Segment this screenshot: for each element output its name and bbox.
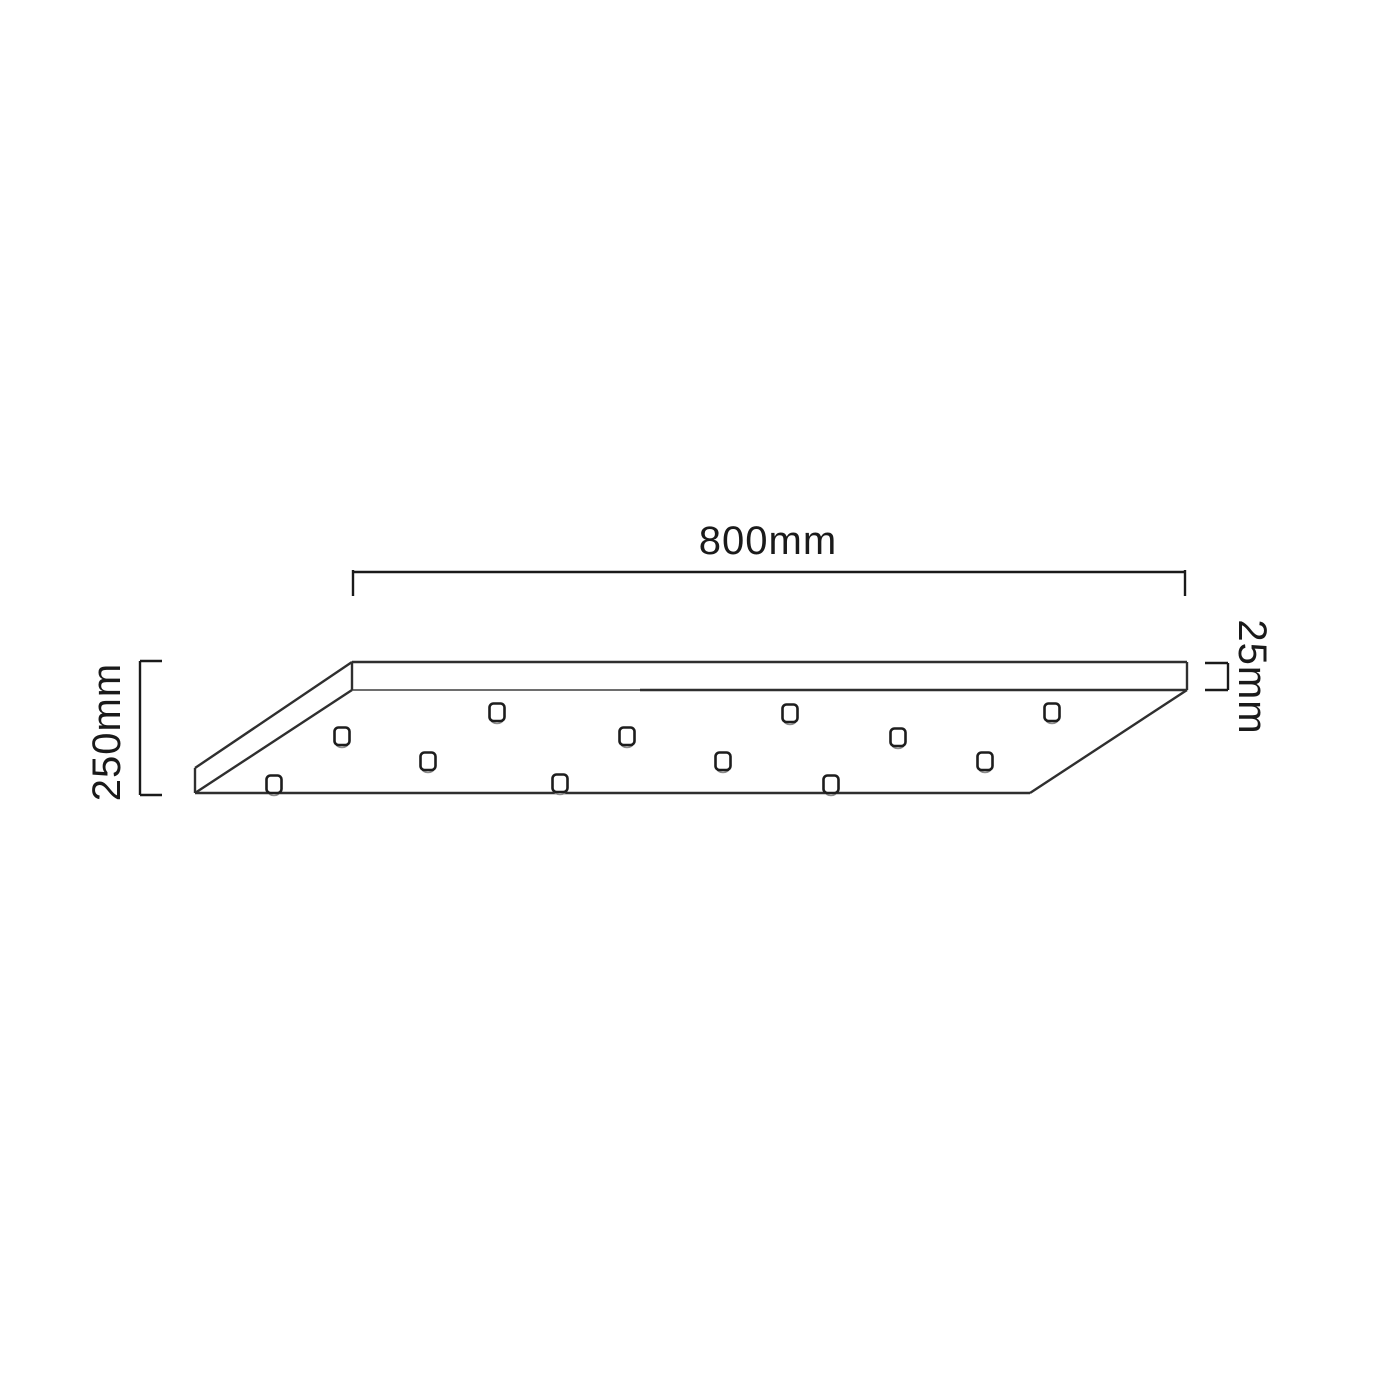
- cord-hole: [553, 775, 568, 795]
- cord-hole: [1045, 704, 1060, 724]
- cord-hole: [620, 728, 635, 748]
- cord-hole: [891, 729, 906, 749]
- cord-holes-group: [267, 704, 1060, 796]
- depth-dimension-label: 250mm: [85, 663, 129, 801]
- width-dimension-label: 800mm: [699, 519, 837, 563]
- cord-hole: [490, 704, 505, 724]
- cord-hole: [783, 705, 798, 725]
- cord-hole: [267, 776, 282, 796]
- plate-left-top-slant-edge: [195, 662, 352, 768]
- cord-hole: [824, 776, 839, 796]
- cord-hole: [335, 728, 350, 748]
- cord-hole: [978, 753, 993, 773]
- cord-hole: [716, 753, 731, 773]
- drawing-canvas: 800mm 250mm 25mm: [0, 0, 1400, 1400]
- thickness-dimension-label: 25mm: [1230, 619, 1274, 734]
- thickness-dimension: 25mm: [1205, 619, 1274, 734]
- depth-dimension: 250mm: [85, 661, 162, 801]
- width-dimension: 800mm: [353, 519, 1185, 596]
- cord-hole: [421, 753, 436, 773]
- canopy-technical-drawing: 800mm 250mm 25mm: [0, 0, 1400, 1400]
